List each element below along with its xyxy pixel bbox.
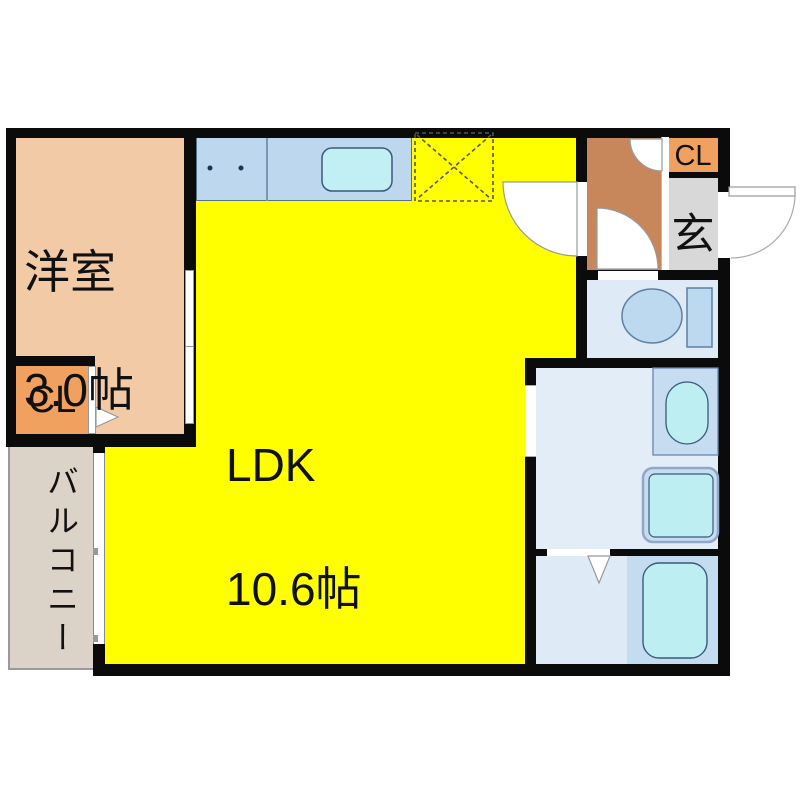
toilet-icon	[622, 288, 712, 347]
western-room-label: 洋室 3.0帖	[24, 184, 134, 479]
washing-machine-icon	[643, 468, 718, 542]
wash-basin-icon	[653, 368, 718, 455]
stove-burner-icon	[208, 166, 213, 171]
ldk-size: 10.6帖	[226, 558, 362, 620]
closet-entrance-door-swing-icon	[630, 139, 662, 171]
refrigerator-space-icon	[415, 133, 493, 201]
closet-left-label: CL	[16, 379, 88, 422]
ldk-door-swing-icon	[503, 182, 577, 256]
balcony-label: バルコニー	[14, 462, 84, 662]
toilet-door-swing-icon	[597, 208, 658, 269]
stove-burner-icon	[239, 166, 244, 171]
western-room-name: 洋室	[24, 243, 134, 302]
kitchen-sink-icon	[322, 148, 392, 191]
ldk-name: LDK	[226, 434, 362, 496]
folding-door-icon	[588, 556, 610, 583]
bathtub-icon	[643, 563, 707, 658]
genkan-label: 玄	[668, 200, 718, 262]
closet-entrance-label: CL	[668, 140, 718, 173]
entrance-door-swing-icon	[729, 187, 795, 258]
ldk-label: LDK 10.6帖	[226, 372, 362, 682]
floorplan-canvas: 洋室 3.0帖 LDK 10.6帖 CL CL 玄 バルコニー	[0, 0, 800, 800]
